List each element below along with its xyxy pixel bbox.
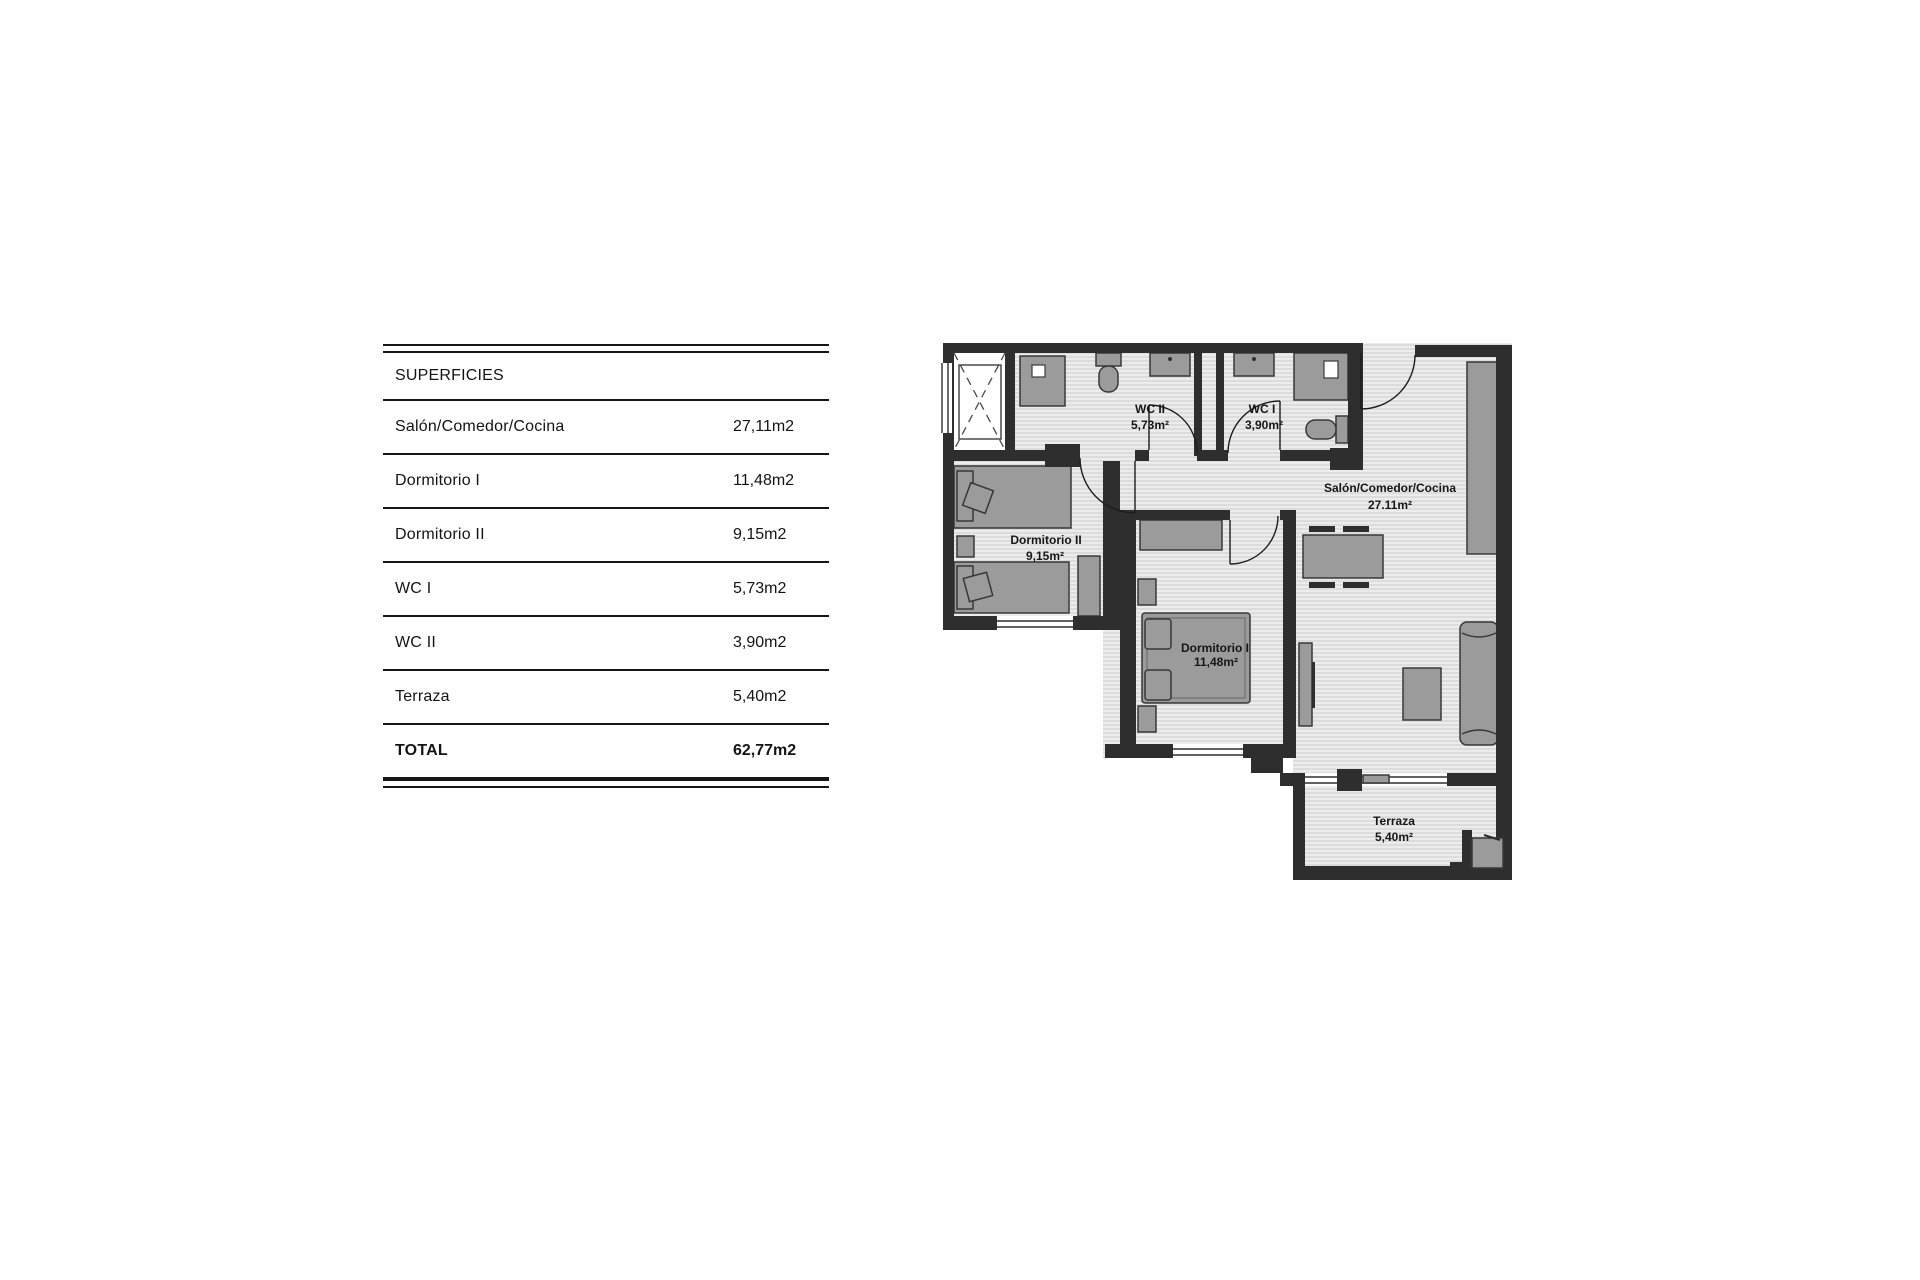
row-label: WC I xyxy=(383,580,431,598)
chair xyxy=(1309,526,1335,532)
pillow xyxy=(1145,670,1171,700)
bedroom1-window xyxy=(1173,744,1243,758)
table-bottom-double-rule xyxy=(383,779,829,788)
total-value: 62,77m2 xyxy=(733,742,796,760)
toilet-bowl xyxy=(1099,366,1118,392)
table-total-row: TOTAL 62,77m2 xyxy=(383,725,829,779)
room-label-terrace: Terraza xyxy=(1373,814,1415,828)
toilet-tank xyxy=(1096,353,1121,366)
sink xyxy=(1150,353,1190,376)
wall-bedroom1-bottom xyxy=(1243,744,1283,758)
room-area-bedroom1: 11,48m² xyxy=(1194,655,1238,669)
bedroom2-window xyxy=(997,616,1073,630)
table-title: SUPERFICIES xyxy=(383,367,504,385)
terrace-unit xyxy=(1472,835,1503,868)
chair xyxy=(1343,582,1369,588)
elevator-shaft xyxy=(954,353,1005,450)
room-area-wc1: 3,90m² xyxy=(1245,418,1283,432)
table-header-row: SUPERFICIES xyxy=(383,353,829,401)
faucet xyxy=(1168,357,1172,361)
wall-step-block xyxy=(1251,756,1283,773)
pillow xyxy=(1145,619,1171,649)
row-value: 5,40m2 xyxy=(733,688,786,706)
wall-terrace-pier xyxy=(1337,769,1362,791)
table-row: Salón/Comedor/Cocina 27,11m2 xyxy=(383,401,829,455)
row-value: 11,48m2 xyxy=(733,472,794,490)
wardrobe xyxy=(1140,520,1222,550)
wall-corridor xyxy=(1135,450,1149,461)
dining-table xyxy=(1303,535,1383,578)
wall-terrace-niche xyxy=(1462,830,1472,870)
row-value: 27,11m2 xyxy=(733,418,794,436)
row-label: Dormitorio I xyxy=(383,472,480,490)
room-area-terrace: 5,40m² xyxy=(1375,830,1413,844)
table-row: WC I 5,73m2 xyxy=(383,563,829,617)
wall-corner-block xyxy=(1330,448,1363,470)
row-label: Terraza xyxy=(383,688,450,706)
tv-sideboard xyxy=(1299,643,1312,726)
wall-bedroom1-bottom xyxy=(1105,744,1173,758)
room-area-living: 27.11m² xyxy=(1368,498,1412,512)
table-row: Dormitorio II 9,15m2 xyxy=(383,509,829,563)
room-area-bedroom2: 9,15m² xyxy=(1026,549,1064,563)
washing-machine xyxy=(1020,356,1065,406)
chair xyxy=(1309,582,1335,588)
floor-plan-drawing: WC II 5,73m² WC I 3,90m² Salón/Comedor/C… xyxy=(938,336,1523,891)
hand-basin xyxy=(1324,361,1338,378)
row-label: WC II xyxy=(383,634,436,652)
table-row: Terraza 5,40m2 xyxy=(383,671,829,725)
room-label-wc2: WC II xyxy=(1135,402,1165,416)
room-area-wc2: 5,73m² xyxy=(1131,418,1169,432)
wall-elevator-right xyxy=(1005,343,1015,450)
wall-bedroom2-right xyxy=(1103,461,1120,630)
row-value: 3,90m2 xyxy=(733,634,786,652)
ac-unit xyxy=(1472,838,1503,868)
floor-plan: WC II 5,73m² WC I 3,90m² Salón/Comedor/C… xyxy=(938,336,1523,891)
surfaces-table: SUPERFICIES Salón/Comedor/Cocina 27,11m2… xyxy=(383,344,829,788)
kitchen-counter xyxy=(1467,362,1498,554)
sofa xyxy=(1460,622,1498,745)
wall-pier xyxy=(1045,444,1080,467)
row-value: 9,15m2 xyxy=(733,526,786,544)
room-label-bedroom2: Dormitorio II xyxy=(1010,533,1081,547)
wall-vent-shaft xyxy=(1216,346,1224,456)
wall-right xyxy=(1496,345,1512,880)
coffee-table xyxy=(1403,668,1441,720)
sliding-door-panel xyxy=(1363,775,1389,783)
wall-terrace-niche-step xyxy=(1450,862,1462,880)
room-label-wc1: WC I xyxy=(1249,402,1276,416)
row-value: 5,73m2 xyxy=(733,580,786,598)
table-row: WC II 3,90m2 xyxy=(383,617,829,671)
toilet-tank xyxy=(1336,416,1348,443)
chair xyxy=(1343,526,1369,532)
wall-bedroom1-left xyxy=(1120,510,1136,758)
room-label-living: Salón/Comedor/Cocina xyxy=(1324,481,1456,495)
room-label-bedroom1: Dormitorio I xyxy=(1181,641,1249,655)
total-label: TOTAL xyxy=(383,742,448,760)
pillow xyxy=(963,572,992,601)
table-row: Dormitorio I 11,48m2 xyxy=(383,455,829,509)
elevator-door-opening xyxy=(938,363,952,433)
wardrobe xyxy=(1078,556,1100,616)
wall-bedroom1-top xyxy=(1120,510,1230,520)
faucet xyxy=(1252,357,1256,361)
wall-terrace-left xyxy=(1293,773,1305,880)
washing-machine-door xyxy=(1032,365,1045,377)
toilet-bowl xyxy=(1306,420,1336,439)
nightstand xyxy=(1138,706,1156,732)
row-label: Salón/Comedor/Cocina xyxy=(383,418,564,436)
wall-bedroom1-right xyxy=(1283,510,1296,758)
tv xyxy=(1312,662,1315,708)
vanity-counter xyxy=(1294,353,1348,400)
sink xyxy=(1234,353,1274,376)
table-top-double-rule xyxy=(383,344,829,353)
bedside-table xyxy=(957,536,974,557)
nightstand xyxy=(1138,579,1156,605)
wall-top xyxy=(943,343,1355,353)
row-label: Dormitorio II xyxy=(383,526,485,544)
